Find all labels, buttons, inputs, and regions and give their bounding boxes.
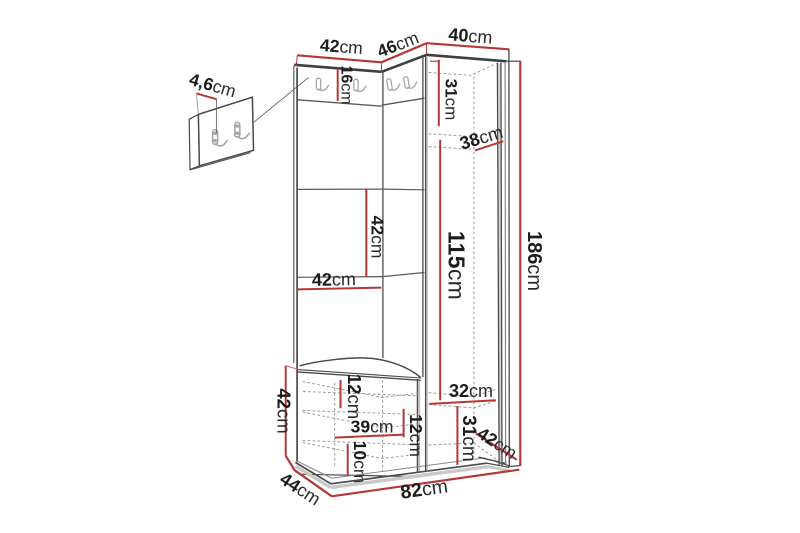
svg-text:42cm: 42cm xyxy=(274,388,295,433)
svg-text:32cm: 32cm xyxy=(449,381,493,401)
svg-text:186cm: 186cm xyxy=(523,231,545,291)
svg-text:39cm: 39cm xyxy=(351,417,394,437)
svg-text:115cm: 115cm xyxy=(444,231,470,300)
svg-text:12cm: 12cm xyxy=(344,374,365,419)
svg-text:16cm: 16cm xyxy=(338,65,355,104)
svg-text:10cm: 10cm xyxy=(350,441,370,484)
svg-text:40cm: 40cm xyxy=(448,24,493,47)
svg-text:42cm: 42cm xyxy=(368,216,388,259)
svg-text:42cm: 42cm xyxy=(319,35,363,58)
svg-text:12cm: 12cm xyxy=(406,414,426,457)
svg-text:42cm: 42cm xyxy=(312,269,356,290)
svg-text:31cm: 31cm xyxy=(442,79,461,121)
